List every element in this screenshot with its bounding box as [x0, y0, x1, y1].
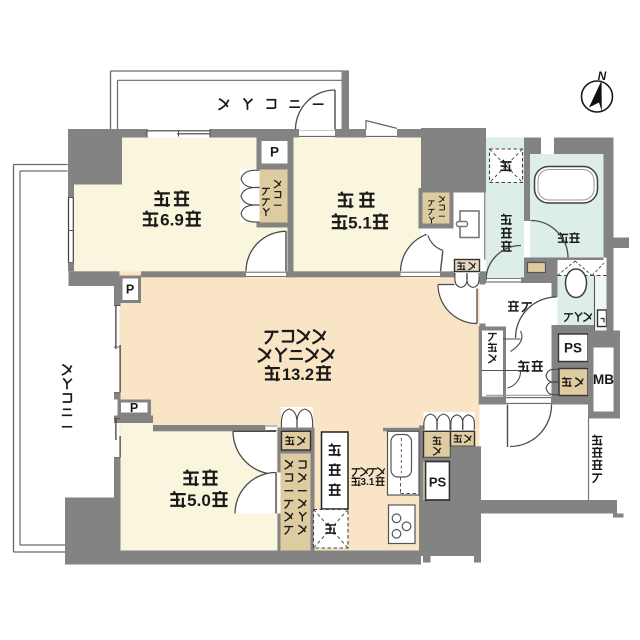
svg-text:P: P: [130, 401, 138, 415]
svg-text:PS: PS: [564, 341, 582, 356]
svg-text:5.0: 5.0: [187, 491, 211, 510]
svg-text:6.9: 6.9: [160, 211, 184, 230]
svg-text:MB: MB: [593, 372, 614, 387]
svg-text:3.1: 3.1: [361, 477, 375, 488]
svg-text:5.1: 5.1: [348, 213, 372, 232]
svg-text:PS: PS: [429, 474, 447, 489]
svg-text:P: P: [126, 283, 134, 297]
svg-text:N: N: [598, 69, 607, 83]
svg-text:13.2: 13.2: [282, 366, 314, 384]
svg-text:P: P: [270, 145, 279, 160]
